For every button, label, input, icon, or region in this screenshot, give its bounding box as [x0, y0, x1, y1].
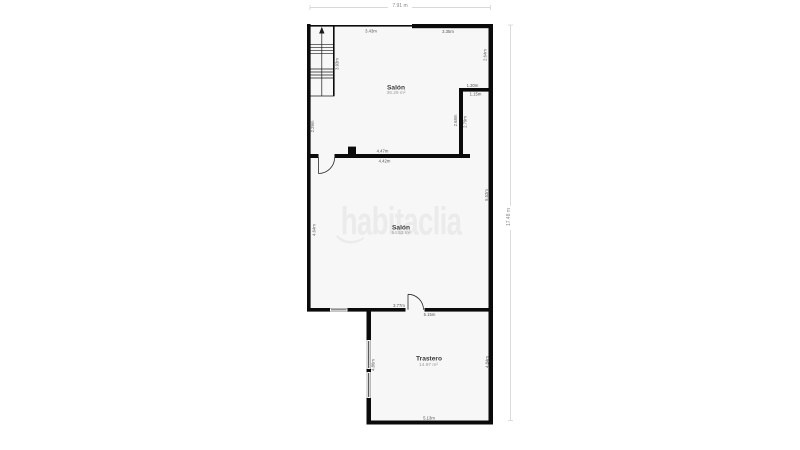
svg-text:4.42m: 4.42m	[379, 159, 391, 164]
svg-text:14.97 m²: 14.97 m²	[419, 362, 438, 368]
svg-text:5.13m: 5.13m	[423, 416, 435, 421]
svg-text:2.64m: 2.64m	[482, 49, 487, 61]
svg-text:2.79m: 2.79m	[462, 116, 467, 128]
svg-text:1.30m: 1.30m	[467, 83, 479, 88]
svg-text:17.48 m: 17.48 m	[506, 208, 512, 226]
svg-text:5.52m: 5.52m	[484, 189, 489, 201]
svg-text:3.43m: 3.43m	[365, 29, 377, 34]
svg-text:4.86m: 4.86m	[371, 359, 376, 371]
svg-text:5.15m: 5.15m	[424, 312, 436, 317]
svg-text:habitaclia: habitaclia	[341, 200, 463, 244]
svg-text:4.47m: 4.47m	[377, 149, 389, 154]
svg-text:7.91 m: 7.91 m	[392, 3, 407, 9]
svg-text:Trastero: Trastero	[416, 356, 442, 363]
svg-text:3.93m: 3.93m	[334, 58, 339, 70]
svg-text:3.35m: 3.35m	[442, 29, 454, 34]
svg-text:3.77m: 3.77m	[393, 303, 405, 308]
svg-text:4.64m: 4.64m	[311, 224, 316, 236]
svg-text:1.15m: 1.15m	[470, 92, 482, 97]
svg-text:54.53 m²: 54.53 m²	[392, 230, 411, 236]
svg-text:4.84m: 4.84m	[484, 356, 489, 368]
svg-text:2.68m: 2.68m	[453, 114, 458, 126]
svg-text:2.29m: 2.29m	[310, 120, 315, 132]
svg-text:36.29 m²: 36.29 m²	[387, 90, 406, 96]
